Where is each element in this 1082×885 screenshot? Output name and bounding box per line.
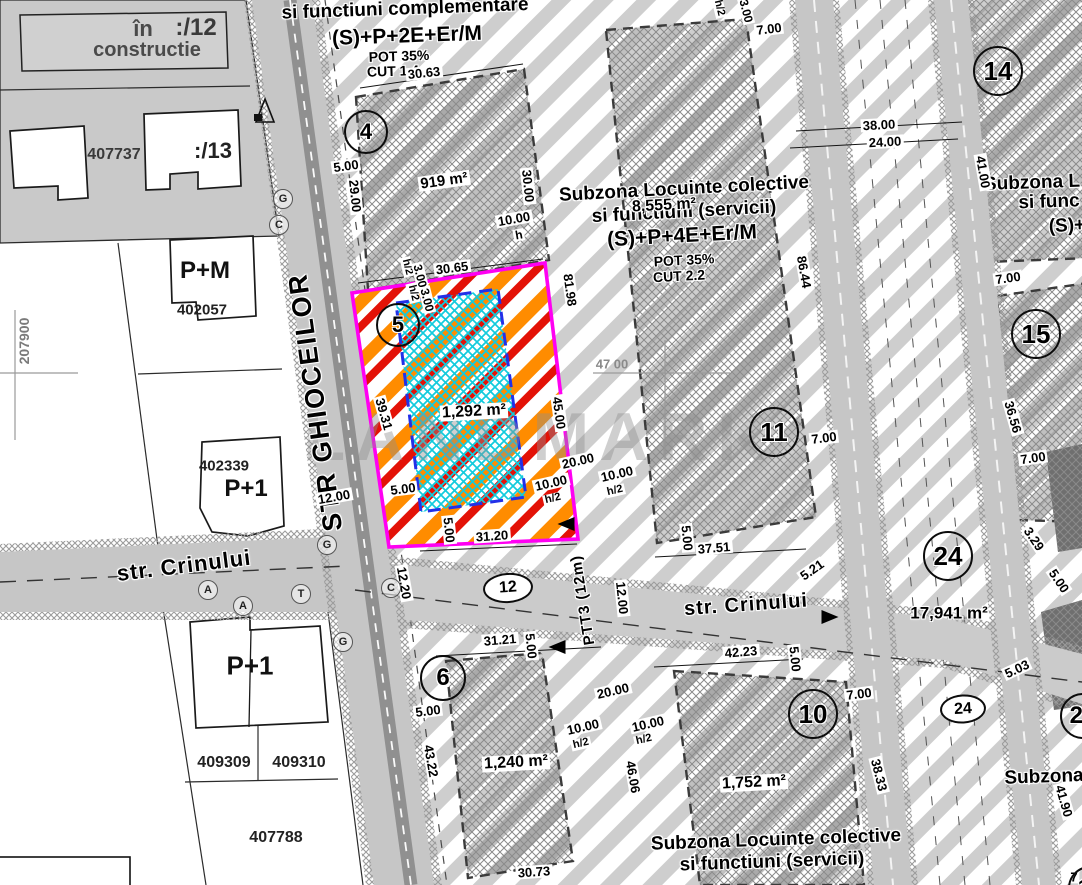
- area-parcel-4: 919 m²: [417, 170, 470, 192]
- parcel-409310-id: 409310: [272, 755, 325, 771]
- dimension-label: 39.31: [373, 395, 396, 434]
- site-plan-canvas: LANDMARK si functiuni complementare(S)+P…: [0, 0, 1082, 885]
- building-p1-north-label: P+1: [224, 477, 267, 501]
- label-layer: si functiuni complementare(S)+P+2E+Er/MP…: [0, 0, 1082, 885]
- dimension-label: 41.00: [973, 153, 992, 191]
- dimension-label: 31.20: [473, 528, 510, 544]
- area-zone-24: 17,941 m²: [910, 604, 988, 621]
- parcel-number-6: 6: [420, 655, 466, 701]
- building-p1-south-label: P+1: [227, 653, 274, 680]
- dimension-label: 30.63: [405, 65, 443, 82]
- dimension-label: 36.56: [1002, 398, 1025, 437]
- dimension-label: 24.00: [866, 134, 903, 149]
- dimension-label: 30.65: [433, 259, 471, 277]
- dimension-label: 86.44: [794, 253, 813, 291]
- dimension-label: 7.00: [809, 430, 840, 447]
- dimension-label: 7.00: [754, 21, 785, 38]
- dimension-label: 5.03: [1001, 657, 1033, 681]
- dimension-label: 5.00: [331, 157, 362, 174]
- utility-marker-c: C: [381, 578, 401, 598]
- dimension-label: 43.22: [421, 742, 440, 780]
- parcel-number-11: 11: [749, 407, 799, 457]
- dimension-label: 38.00: [860, 117, 897, 132]
- dimension-label: 5.00: [1045, 565, 1072, 597]
- parcel-number-10: 10: [788, 689, 838, 739]
- street-ptt3-label: PTT3 (12m): [568, 554, 597, 646]
- dimension-label: h/2: [542, 491, 564, 506]
- parcel-407737-id: 407737: [87, 147, 140, 163]
- zone-top-function: si functiuni complementare: [281, 0, 529, 23]
- leader-arrow-west: [558, 517, 575, 531]
- dimension-label: 46.06: [623, 758, 642, 796]
- dimension-label: h: [512, 228, 525, 242]
- dimension-label: 5.00: [388, 481, 419, 498]
- parcel-12-status-2: constructie: [93, 40, 201, 60]
- dimension-label: 5.00: [787, 644, 803, 675]
- dimension-label: 30.73: [515, 864, 552, 880]
- zone-bottom-name-2: si functiuni (servicii): [679, 849, 864, 875]
- leader-arrow-east: [822, 610, 839, 624]
- dimension-label: 45.00: [550, 394, 568, 432]
- utility-marker-g: G: [273, 189, 293, 209]
- dimension-label: h/2: [711, 0, 727, 19]
- parcel-number-14: 14: [973, 46, 1023, 96]
- dimension-label: 20.00: [594, 680, 633, 701]
- dimension-label: 7.00: [993, 269, 1024, 286]
- utility-marker-t: T: [291, 584, 311, 604]
- dimension-label: 41.90: [1053, 782, 1076, 821]
- zone-top-regime: (S)+P+2E+Er/M: [332, 23, 483, 50]
- utility-marker-g: G: [317, 535, 337, 555]
- area-parcel-5: 1,292 m²: [440, 402, 509, 422]
- utility-marker-c: C: [269, 215, 289, 235]
- parcel-402339-id: 402339: [199, 458, 249, 473]
- dimension-label: 3.29: [1020, 523, 1047, 555]
- dimension-label: 37.51: [695, 540, 733, 556]
- grid-northing-label: 207900: [17, 318, 31, 365]
- dimension-label: 38.33: [868, 756, 890, 795]
- zone-center-pot: POT 35%: [653, 251, 714, 268]
- building-pm-label: P+M: [180, 259, 230, 283]
- dimension-label: 10.00: [532, 472, 571, 493]
- dimension-label: 5.00: [679, 523, 695, 554]
- dimension-label: 20.00: [559, 450, 598, 471]
- dimension-label: 7.00: [844, 686, 875, 703]
- grid-easting-label: 47 00: [596, 357, 629, 370]
- utility-marker-a: A: [198, 580, 218, 600]
- parcel-407788-id: 407788: [249, 830, 302, 846]
- parcel-409309-id: 409309: [197, 755, 250, 771]
- dimension-label: 5.00: [523, 631, 539, 662]
- dimension-label: 31.21: [481, 632, 519, 648]
- parcel-number-4: 4: [344, 110, 388, 154]
- dimension-label: 12.00: [614, 579, 631, 617]
- street-crinului-west-label: str. Crinului: [116, 547, 253, 586]
- utility-marker-a: A: [233, 596, 253, 616]
- dimension-label: 3.00: [737, 0, 755, 26]
- parcel-12-id: :/12: [175, 16, 216, 40]
- dimension-label: 7.00: [1018, 449, 1049, 466]
- parcel-number-24: 24: [923, 531, 973, 581]
- parcel-number-15: 15: [1011, 309, 1061, 359]
- leader-arrow-west-2: [549, 640, 566, 654]
- dimension-label: 42.23: [722, 644, 760, 660]
- zone-right-top-name-2: si func: [1018, 191, 1080, 213]
- dimension-label: h/2: [633, 732, 655, 747]
- area-zone-center: 8,555 m²: [632, 196, 697, 216]
- area-parcel-6: 1,240 m²: [482, 753, 551, 773]
- parcel-number-5: 5: [376, 303, 420, 347]
- parcel-13-id: :/13: [194, 140, 232, 162]
- zone-right-bottom-name: Subzona: [1004, 766, 1082, 788]
- dimension-label: 10.00: [495, 209, 533, 228]
- dimension-label: 5.21: [796, 556, 828, 584]
- parcel-12-status-1: în: [133, 18, 153, 40]
- dimension-label: 3.00: [418, 285, 436, 315]
- road-number-12: 12: [482, 571, 534, 604]
- dimension-label: 29.00: [347, 177, 364, 215]
- dimension-label: 30.00: [520, 167, 537, 205]
- dimension-label: 10.00: [598, 463, 637, 484]
- zone-center-regime: (S)+P+4E+Er/M: [607, 221, 758, 250]
- zone-center-cut: CUT 2.2: [653, 268, 706, 285]
- utility-marker-g: G: [333, 632, 353, 652]
- zone-right-top-regime: (S)+: [1048, 216, 1082, 237]
- dimension-label: 5.00: [413, 703, 444, 720]
- dimension-label: h/2: [604, 483, 626, 498]
- road-number-24: 24: [939, 693, 986, 724]
- street-crinului-east-label: str. Crinului: [683, 591, 808, 620]
- dimension-label: h/2: [570, 736, 592, 751]
- parcel-number-20: 20: [1060, 693, 1082, 739]
- dimension-label: 5.00: [441, 515, 457, 546]
- dimension-label: 10.00: [564, 716, 603, 737]
- area-parcel-10: 1,752 m²: [720, 773, 789, 793]
- dimension-label: 81.98: [561, 271, 579, 309]
- parcel-402057-id: 402057: [177, 302, 227, 317]
